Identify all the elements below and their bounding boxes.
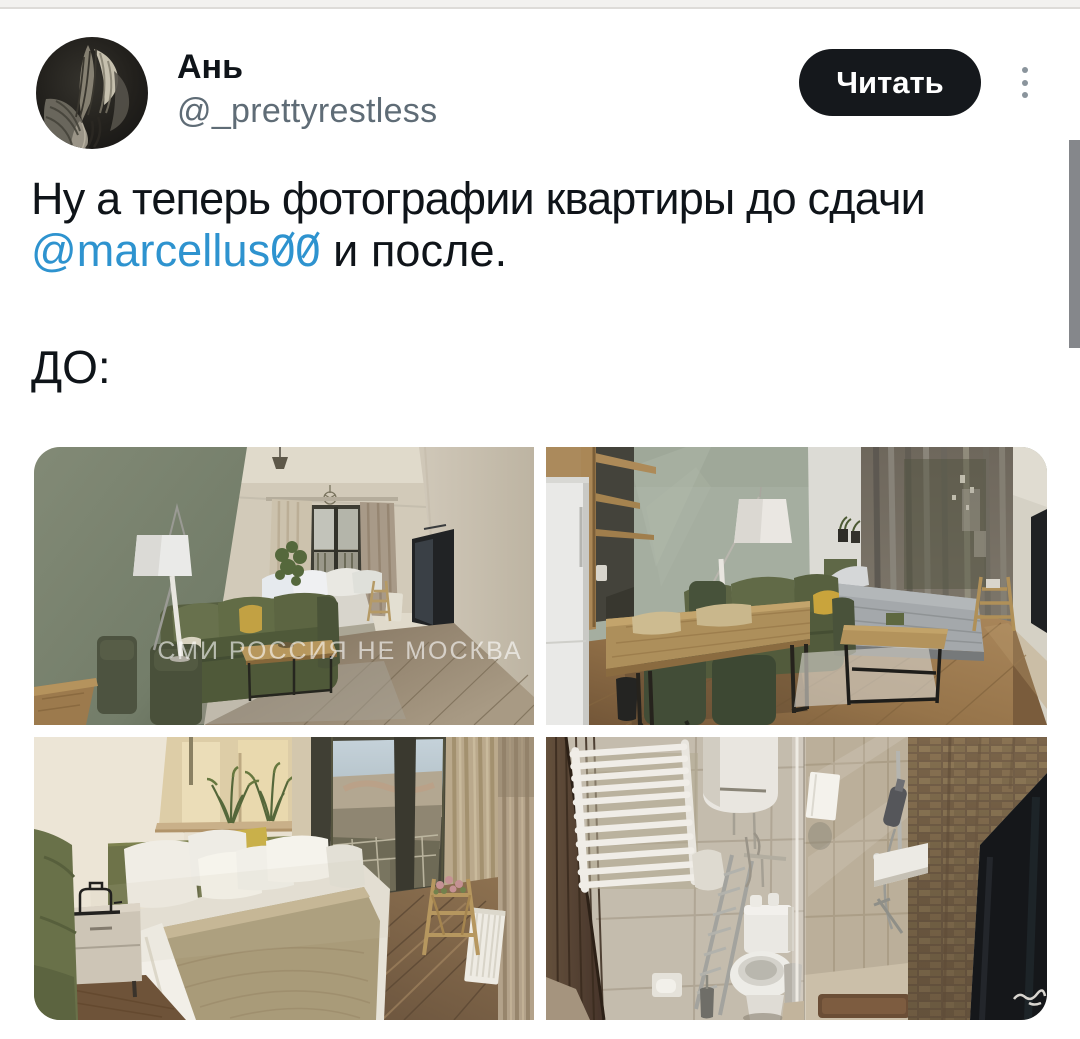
svg-text:СМИ РОССИЯ НЕ МОСКВА: СМИ РОССИЯ НЕ МОСКВА [157, 637, 522, 665]
